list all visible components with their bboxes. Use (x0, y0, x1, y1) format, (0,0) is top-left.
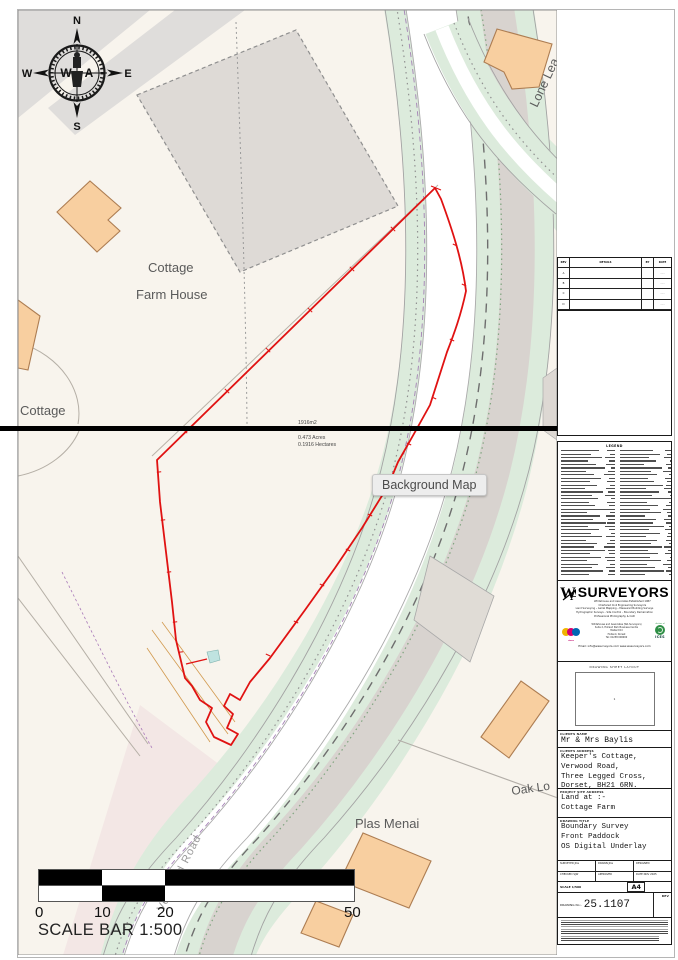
paper-size: A4 (627, 882, 645, 892)
client-name-value: Mr & Mrs Baylis (558, 736, 671, 746)
svg-text:N: N (73, 15, 81, 27)
label-cottage-left: Cottage (20, 403, 66, 418)
surveyors-box: W A SURVEYORS Whitehouse and Associates … (557, 580, 672, 662)
label-plas-menai: Plas Menai (355, 816, 419, 831)
svg-text:S: S (73, 121, 80, 133)
sheet-layout-box: DRAWING SHEET LAYOUT 1 (557, 661, 672, 731)
svg-text:A: A (85, 66, 94, 80)
disclaimer-box (557, 917, 672, 945)
svg-text:E: E (124, 68, 131, 80)
notes-box (557, 310, 672, 436)
legend-box: LEGEND (557, 441, 672, 581)
scale-bar-ticks: 0102050 (38, 902, 358, 920)
site-address-value: Land at :-Cottage Farm (558, 794, 671, 814)
background-map-tooltip[interactable]: Background Map (372, 474, 487, 496)
firm-name: SURVEYORS (578, 584, 669, 600)
svg-text:W: W (60, 66, 72, 80)
rev-label: REV (654, 893, 671, 898)
legend-title: LEGEND (561, 444, 668, 448)
drawing-title-value: Boundary SurveyFront PaddockOS Digital U… (558, 823, 671, 852)
drawing-number-label: DRAWING No:- (558, 903, 584, 907)
sheet-layout-title: DRAWING SHEET LAYOUT (558, 665, 671, 669)
svg-text:W: W (22, 68, 33, 80)
client-address-value: Keeper's Cottage,Verwood Road,Three Legg… (558, 753, 671, 789)
label-cottage: Cottage (148, 260, 194, 275)
cices-logo-icon: cices (560, 621, 582, 642)
drawing-number-value: 25.1107 (584, 899, 630, 911)
site-address-box: PROJECT SITE ADDRESS Land at :-Cottage F… (557, 788, 672, 818)
ices-logo-icon: division of ICES (651, 623, 669, 639)
revision-table: REVDETAILSBYDATEA··.··B··.··C··.··D··.·· (557, 257, 672, 311)
scale-bar-caption: SCALE BAR 1:500 (38, 921, 358, 940)
drawing-title-box: DRAWING TITLE Boundary SurveyFront Paddo… (557, 817, 672, 861)
wa-monogram-icon: W A (560, 583, 576, 602)
label-farm-house: Farm House (136, 287, 208, 302)
sheet-layout-rect: 1 (575, 672, 655, 726)
client-address-box: CLIENTS ADDRESS Keeper's Cottage,Verwood… (557, 747, 672, 789)
firm-email: Email: info@wasurveyors.com www.wasurvey… (560, 644, 669, 648)
scale-label: SCALE 1/500 (558, 885, 627, 889)
scale-bar: 0102050 SCALE BAR 1:500 (38, 869, 358, 940)
firm-contact: Whitehouse and Associates (WA Surveyors)… (582, 623, 651, 640)
firm-services: Land Surveying – Aerial Mapping – Measur… (560, 607, 669, 619)
client-name-box: CLIENTS NAME Mr & Mrs Baylis (557, 730, 672, 748)
drawing-number-box: DRAWING No:- 25.1107 REV (557, 892, 672, 918)
svg-text:0.1916 Hectares: 0.1916 Hectares (298, 442, 336, 448)
title-block: REVDETAILSBYDATEA··.··B··.··C··.··D··.··… (557, 258, 672, 945)
svg-text:0.473 Acres: 0.473 Acres (298, 435, 326, 441)
scale-bar-row-top (38, 869, 355, 886)
measurement-line (0, 426, 562, 431)
credits-box: SURVEYED JDaDRAWN JDaDESIGNEDCHECKED SJW… (557, 860, 672, 882)
scale-bar-row-bottom (38, 885, 355, 902)
